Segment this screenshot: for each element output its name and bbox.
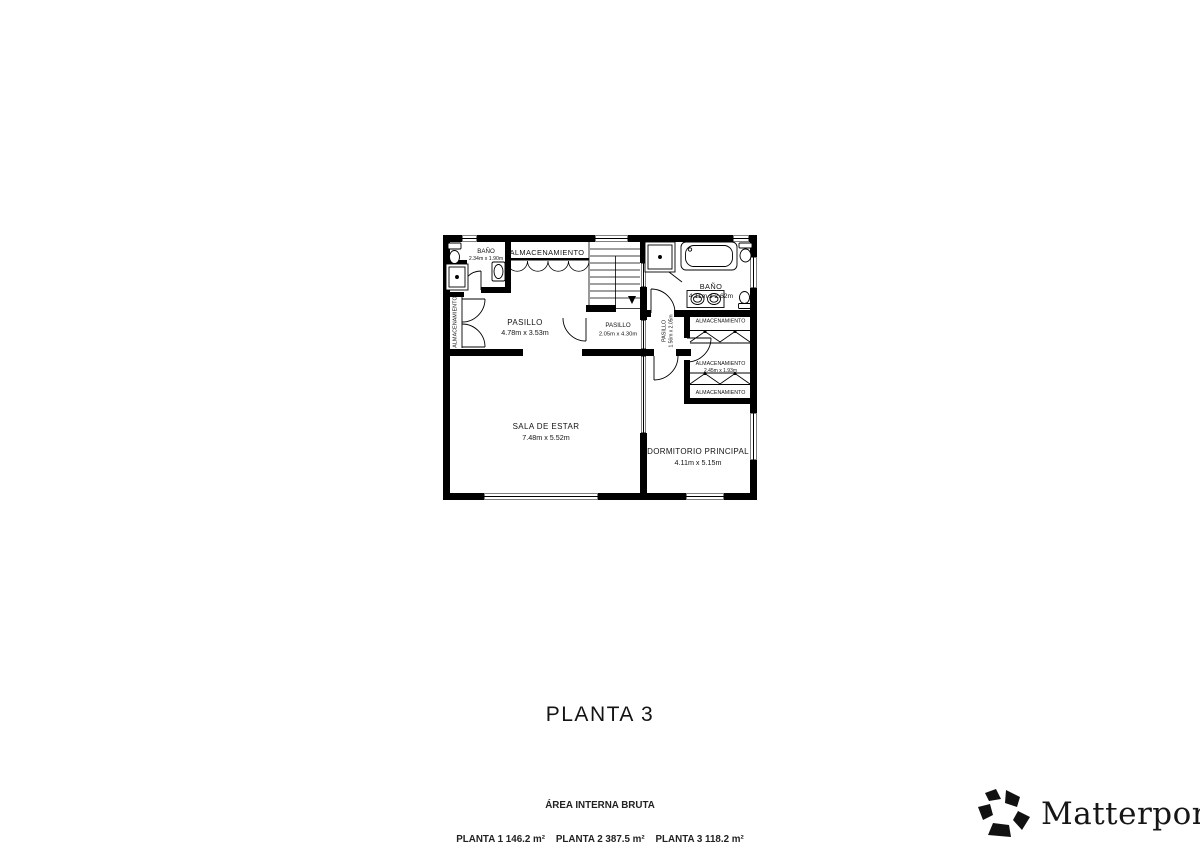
staircase [589, 242, 640, 309]
room-label-almacenamiento-r2: ALMACENAMIENTO [696, 361, 746, 367]
room-dims-bano-tr: 4.11m x 2.62m [689, 293, 734, 300]
toilet-icon [739, 243, 752, 262]
bifold-doors [690, 330, 750, 384]
room-label-almacenamiento-r3: ALMACENAMIENTO [696, 390, 746, 396]
room-label-sala: SALA DE ESTAR [513, 422, 580, 431]
room-dims-dormitorio: 4.11m x 5.15m [674, 458, 721, 467]
toilet-icon [448, 243, 461, 264]
sink-icon [492, 262, 505, 281]
bathtub-icon [681, 242, 737, 270]
door-bathroom-tr [651, 289, 675, 313]
shower-icon [446, 264, 468, 290]
room-label-pasillo-center: PASILLO [605, 322, 631, 329]
room-dims-almacenamiento-r2: 2.45m x 1.93m [704, 368, 737, 374]
matterport-wordmark: Matterport [1041, 796, 1200, 832]
matterport-pinwheel-icon [976, 787, 1032, 841]
bathroom-tl-fixtures [446, 243, 505, 290]
room-dims-pasillo-center: 2.05m x 4.30m [599, 332, 638, 338]
room-label-pasillo-main: PASILLO [507, 318, 543, 327]
floor-plan-page: BAÑO 2.34m x 1.90m ALMACENAMIENTO ALMACE… [0, 0, 1200, 849]
room-dims-sala: 7.48m x 5.52m [522, 433, 570, 442]
matterport-logo: Matterport ® [976, 787, 1200, 841]
room-label-bano-tl: BAÑO [477, 248, 495, 255]
room-label-almacenamiento-r1: ALMACENAMIENTO [696, 319, 746, 325]
room-dims-pasillo-main: 4.78m x 3.53m [501, 328, 549, 337]
room-label-pasillo-right: PASILLO [662, 320, 668, 342]
stair-direction-arrow-icon [628, 296, 636, 304]
room-dims-pasillo-right: 1.56m x 2.05m [669, 314, 675, 347]
door-living-room [563, 318, 586, 341]
floor-plan-drawing: BAÑO 2.34m x 1.90m ALMACENAMIENTO ALMACE… [440, 230, 760, 502]
floor-title: PLANTA 3 [0, 703, 1200, 727]
shower-icon [645, 242, 682, 282]
room-dims-bano-tl: 2.34m x 1.90m [469, 256, 503, 262]
door-closet-left-upper [462, 299, 485, 322]
door-bedroom [654, 356, 678, 380]
toilet-icon [739, 292, 751, 309]
door-closet-left-lower [462, 324, 485, 347]
room-label-almacenamiento-top: ALMACENAMIENTO [510, 248, 585, 257]
room-label-bano-tr: BAÑO [700, 282, 723, 291]
room-label-dormitorio: DORMITORIO PRINCIPAL [647, 447, 749, 456]
closet-hanging-arcs [507, 261, 589, 271]
room-label-almacenamiento-left: ALMACENAMIENTO [453, 296, 459, 347]
